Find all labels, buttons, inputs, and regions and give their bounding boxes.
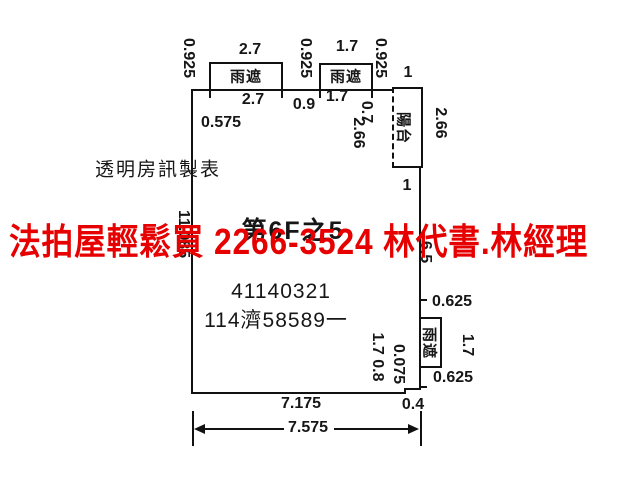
dimline-arrow-left-icon [194,424,205,434]
tick-top-2 [281,90,283,98]
dim-canopy2-width-top: 1.7 [336,38,358,56]
dim-topwall-27: 2.7 [242,91,264,109]
dim-canopy-depth-mid: 0.925 [296,38,314,78]
tick-right-2 [419,386,427,388]
tick-right-1 [419,299,427,301]
wall-bottom [191,392,406,394]
dim-step-0075: 0.075 [389,344,407,384]
tick-top-4 [371,90,373,98]
dimline-arrow-right-icon [408,424,419,434]
maker-credit: 透明房訊製表 [95,155,221,182]
dim-interior-17-08: 1.7 0.8 [368,333,386,382]
dim-balcony-height-right: 2.66 [431,107,449,138]
dim-canopy-depth-right: 0.925 [371,38,389,78]
dimline-segment-right [334,428,410,430]
tick-top-3 [319,90,321,98]
canopy2-label: 雨遮 [330,66,362,87]
dim-canopy1-width-top: 2.7 [239,41,261,59]
case-number: 114濟58589一 [204,304,348,334]
wall-step-horizontal [404,388,421,390]
canopy1-label: 雨遮 [230,66,262,87]
dim-right-0625-bottom: 0.625 [433,369,473,387]
dim-right-0625-top: 0.625 [432,293,472,311]
tick-top-1 [209,90,211,98]
dimline-end-right [420,411,422,446]
canopy3-label: 雨遮 [420,327,441,359]
dim-rightwall-1: 1 [403,177,412,195]
dim-bottom-7575: 7.575 [288,419,328,437]
dim-bottom-7175: 7.175 [281,395,321,413]
dim-bottom-04: 0.4 [402,396,424,414]
watermark-text: 法拍屋輕鬆買 2266-3524 林代書.林經理 [9,213,588,265]
dim-topwall-0575: 0.575 [201,114,241,132]
dim-balcony-height-left: 2.66 [349,117,367,148]
dimline-segment-left [200,428,284,430]
dim-balcony-width-top: 1 [404,64,413,82]
dim-canopy-depth-left: 0.925 [179,38,197,78]
plan-number: 41140321 [231,280,331,304]
floor-plan-canvas: 0.925 2.7 0.925 1.7 0.925 1 雨遮 雨遮 2.7 0.… [0,0,640,480]
dim-canopy3-17: 1.7 [458,334,476,356]
dim-topwall-09: 0.9 [293,96,315,114]
dim-topwall-17: 1.7 [326,88,348,106]
balcony-label: 陽台 [394,112,415,144]
